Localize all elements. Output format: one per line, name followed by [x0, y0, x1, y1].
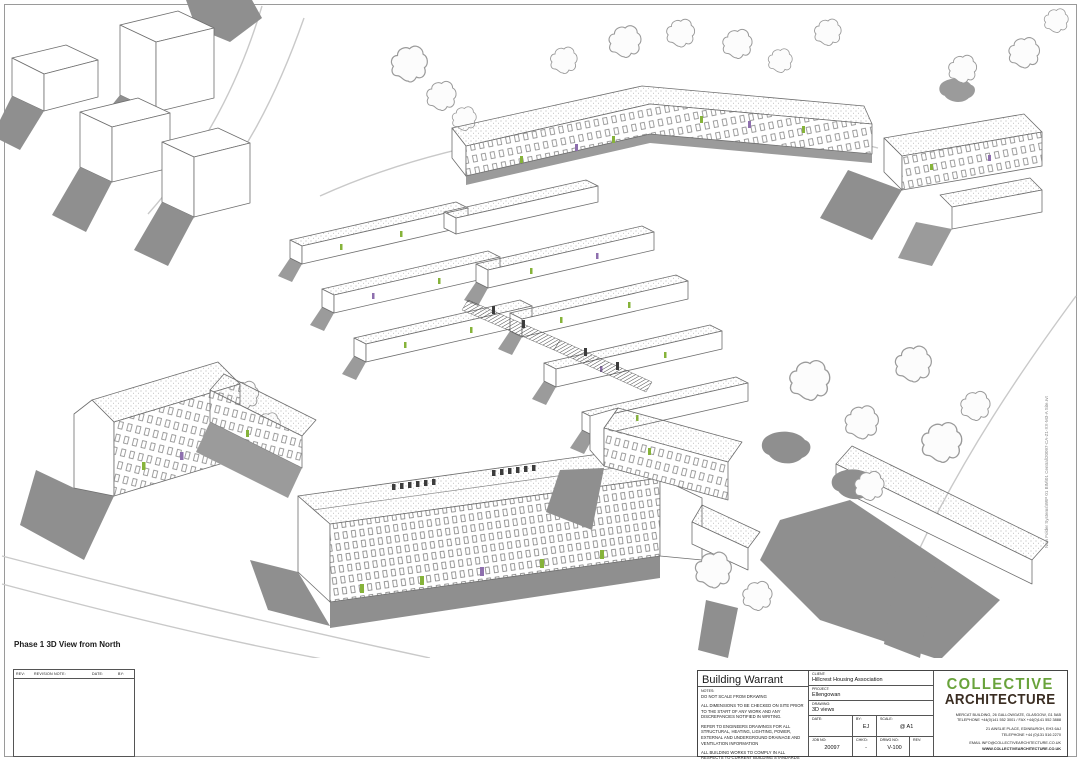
by-value: EJ	[856, 724, 876, 730]
central-terraces	[278, 180, 748, 454]
drawing-sheet: New Folder Systems\WIP 01 BIM\01 Central…	[0, 0, 1080, 762]
drawing-number-value: V-100	[880, 745, 909, 751]
by-col-header: BY:	[118, 672, 134, 676]
title-block: Building Warrant NOTES: DO NOT SCALE FRO…	[697, 670, 1068, 757]
firm-address: MERCAT BUILDING, 26 GALLOWGATE, GLASGOW,…	[934, 713, 1067, 753]
checked-value: -	[856, 745, 876, 751]
drawing-number-field: DRWG NO: V-100	[877, 737, 910, 756]
address-line: WWW.COLLECTIVEARCHITECTURE.CO.UK	[934, 747, 1061, 753]
revision-table: REV: REVISION NOTE: DATE: BY:	[13, 669, 135, 757]
note-item: ALL BUILDING WORKS TO COMPLY IN ALL RESP…	[701, 750, 805, 762]
drawing-purpose-title: Building Warrant	[698, 671, 808, 687]
drawing-value: 3D views	[812, 707, 933, 713]
site-3d-view: New Folder Systems\WIP 01 BIM\01 Central…	[0, 0, 1080, 658]
lower-left-building	[20, 362, 316, 560]
date-field: DATE:	[809, 716, 853, 736]
job-number-label: JOB NO:	[812, 738, 852, 742]
scale-label: SCALE:	[880, 717, 933, 721]
by-field: BY: EJ	[853, 716, 877, 736]
rev-col-header: REV:	[14, 672, 34, 676]
note-item: DO NOT SCALE FROM DRAWING	[701, 694, 805, 700]
revision-field: REV:	[910, 737, 933, 756]
revision-label: REV:	[913, 738, 933, 742]
note-col-header: REVISION NOTE:	[34, 672, 92, 676]
drawing-number-label: DRWG NO:	[880, 738, 909, 742]
checked-label: CHK'D:	[856, 738, 876, 742]
view-caption: Phase 1 3D View from North	[14, 640, 121, 649]
date-col-header: DATE:	[92, 672, 118, 676]
firm-logo-line1: COLLECTIVE	[945, 677, 1056, 693]
note-item: REFER TO ENGINEERS DRAWINGS FOR ALL STRU…	[701, 724, 805, 747]
drawing-label: DRAWING:	[812, 702, 933, 706]
date-label: DATE:	[812, 717, 852, 721]
drawing-field: DRAWING: 3D views	[809, 701, 933, 716]
notes-cell: NOTES: DO NOT SCALE FROM DRAWING ALL DIM…	[698, 687, 808, 762]
project-field: PROJECT: Ellengowan	[809, 686, 933, 701]
top-terrace	[452, 86, 872, 185]
client-field: CLIENT: Hillcrest Housing Association	[809, 671, 933, 686]
firm-logo: COLLECTIVE ARCHITECTURE	[945, 677, 1056, 708]
context-buildings	[0, 0, 262, 266]
firm-logo-line2: ARCHITECTURE	[945, 693, 1056, 708]
scale-field: SCALE: @ A1	[877, 716, 933, 736]
job-number-value: 20097	[812, 745, 852, 751]
project-value: Ellengowan	[812, 692, 933, 698]
firm-panel: COLLECTIVE ARCHITECTURE MERCAT BUILDING,…	[934, 671, 1067, 756]
scale-value: @ A1	[880, 724, 933, 730]
trees-right	[762, 346, 990, 500]
notes-label: NOTES:	[701, 689, 714, 693]
client-label: CLIENT:	[812, 672, 933, 676]
checked-field: CHK'D: -	[853, 737, 877, 756]
note-item: ALL DIMENSIONS TO BE CHECKED ON SITE PRI…	[701, 703, 805, 720]
by-label: BY:	[856, 717, 876, 721]
file-path-stamp: New Folder Systems\WIP 01 BIM\01 Central…	[1044, 396, 1049, 548]
trees-bottom	[695, 552, 772, 658]
right-building	[760, 446, 1048, 658]
project-label: PROJECT:	[812, 687, 933, 691]
client-value: Hillcrest Housing Association	[812, 677, 933, 683]
job-number-field: JOB NO: 20097	[809, 737, 853, 756]
